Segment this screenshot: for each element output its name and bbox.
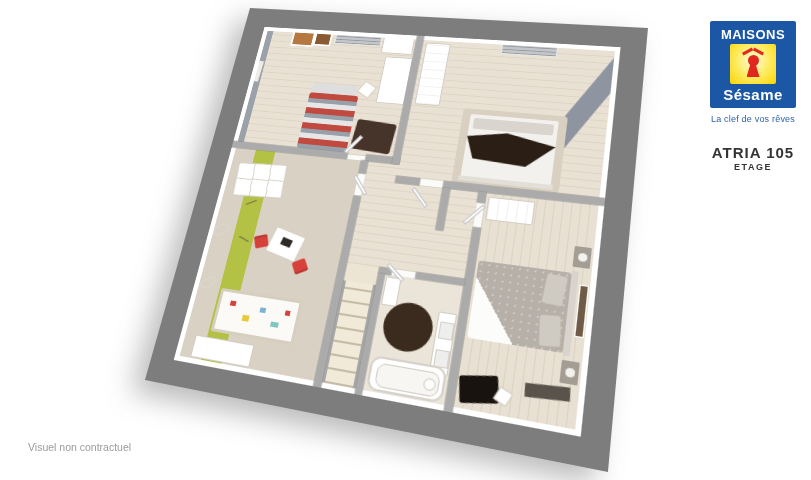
brand-block: MAISONS Sésame La clef de vos rêves ATRI…	[703, 21, 803, 172]
roof-icon-left	[742, 48, 753, 55]
logo-text-maisons: MAISONS	[721, 28, 785, 41]
bathroom-sink	[438, 321, 455, 340]
floor-label: ETAGE	[703, 162, 803, 172]
maisons-sesame-logo: MAISONS Sésame	[710, 21, 796, 108]
landing-floor-b	[379, 182, 479, 279]
floorplan-3d-square	[145, 8, 648, 472]
kids-bed-dot-teal	[270, 321, 279, 327]
kids-bed-dot-red-2	[285, 310, 291, 316]
disclaimer-text: Visuel non contractuel	[28, 441, 131, 453]
master-lamp-2	[565, 367, 576, 378]
keyhole-stem	[747, 63, 760, 77]
bedroom2-dark-throw	[463, 130, 557, 170]
model-name: ATRIA 105	[703, 144, 803, 161]
logo-text-sesame: Sésame	[723, 87, 783, 102]
kids-bed-dot-red	[230, 300, 237, 306]
roof-icon-right	[753, 48, 764, 55]
master-lamp	[578, 253, 588, 262]
bedroom1-shelf	[381, 35, 416, 55]
master-nightstand	[572, 246, 591, 269]
floorplan-render	[0, 0, 811, 480]
bedroom2-pillows	[473, 118, 555, 136]
kids-bed-dot-blue	[259, 307, 266, 313]
bedroom2-bed	[460, 114, 559, 187]
bedroom1-artwork-2	[313, 31, 334, 46]
master-nightstand-2	[559, 360, 579, 386]
bedroom1-dark-rug	[350, 119, 397, 155]
brand-tagline: La clef de vos rêves	[703, 114, 803, 124]
page: MAISONS Sésame La clef de vos rêves ATRI…	[0, 0, 811, 480]
kids-shelving-unit	[232, 162, 287, 199]
kids-bed-dot-yellow	[242, 315, 250, 322]
master-bed	[467, 260, 579, 354]
master-dark-desk	[459, 375, 498, 403]
keyhole-icon	[730, 44, 776, 84]
master-pillow-2	[539, 315, 561, 347]
